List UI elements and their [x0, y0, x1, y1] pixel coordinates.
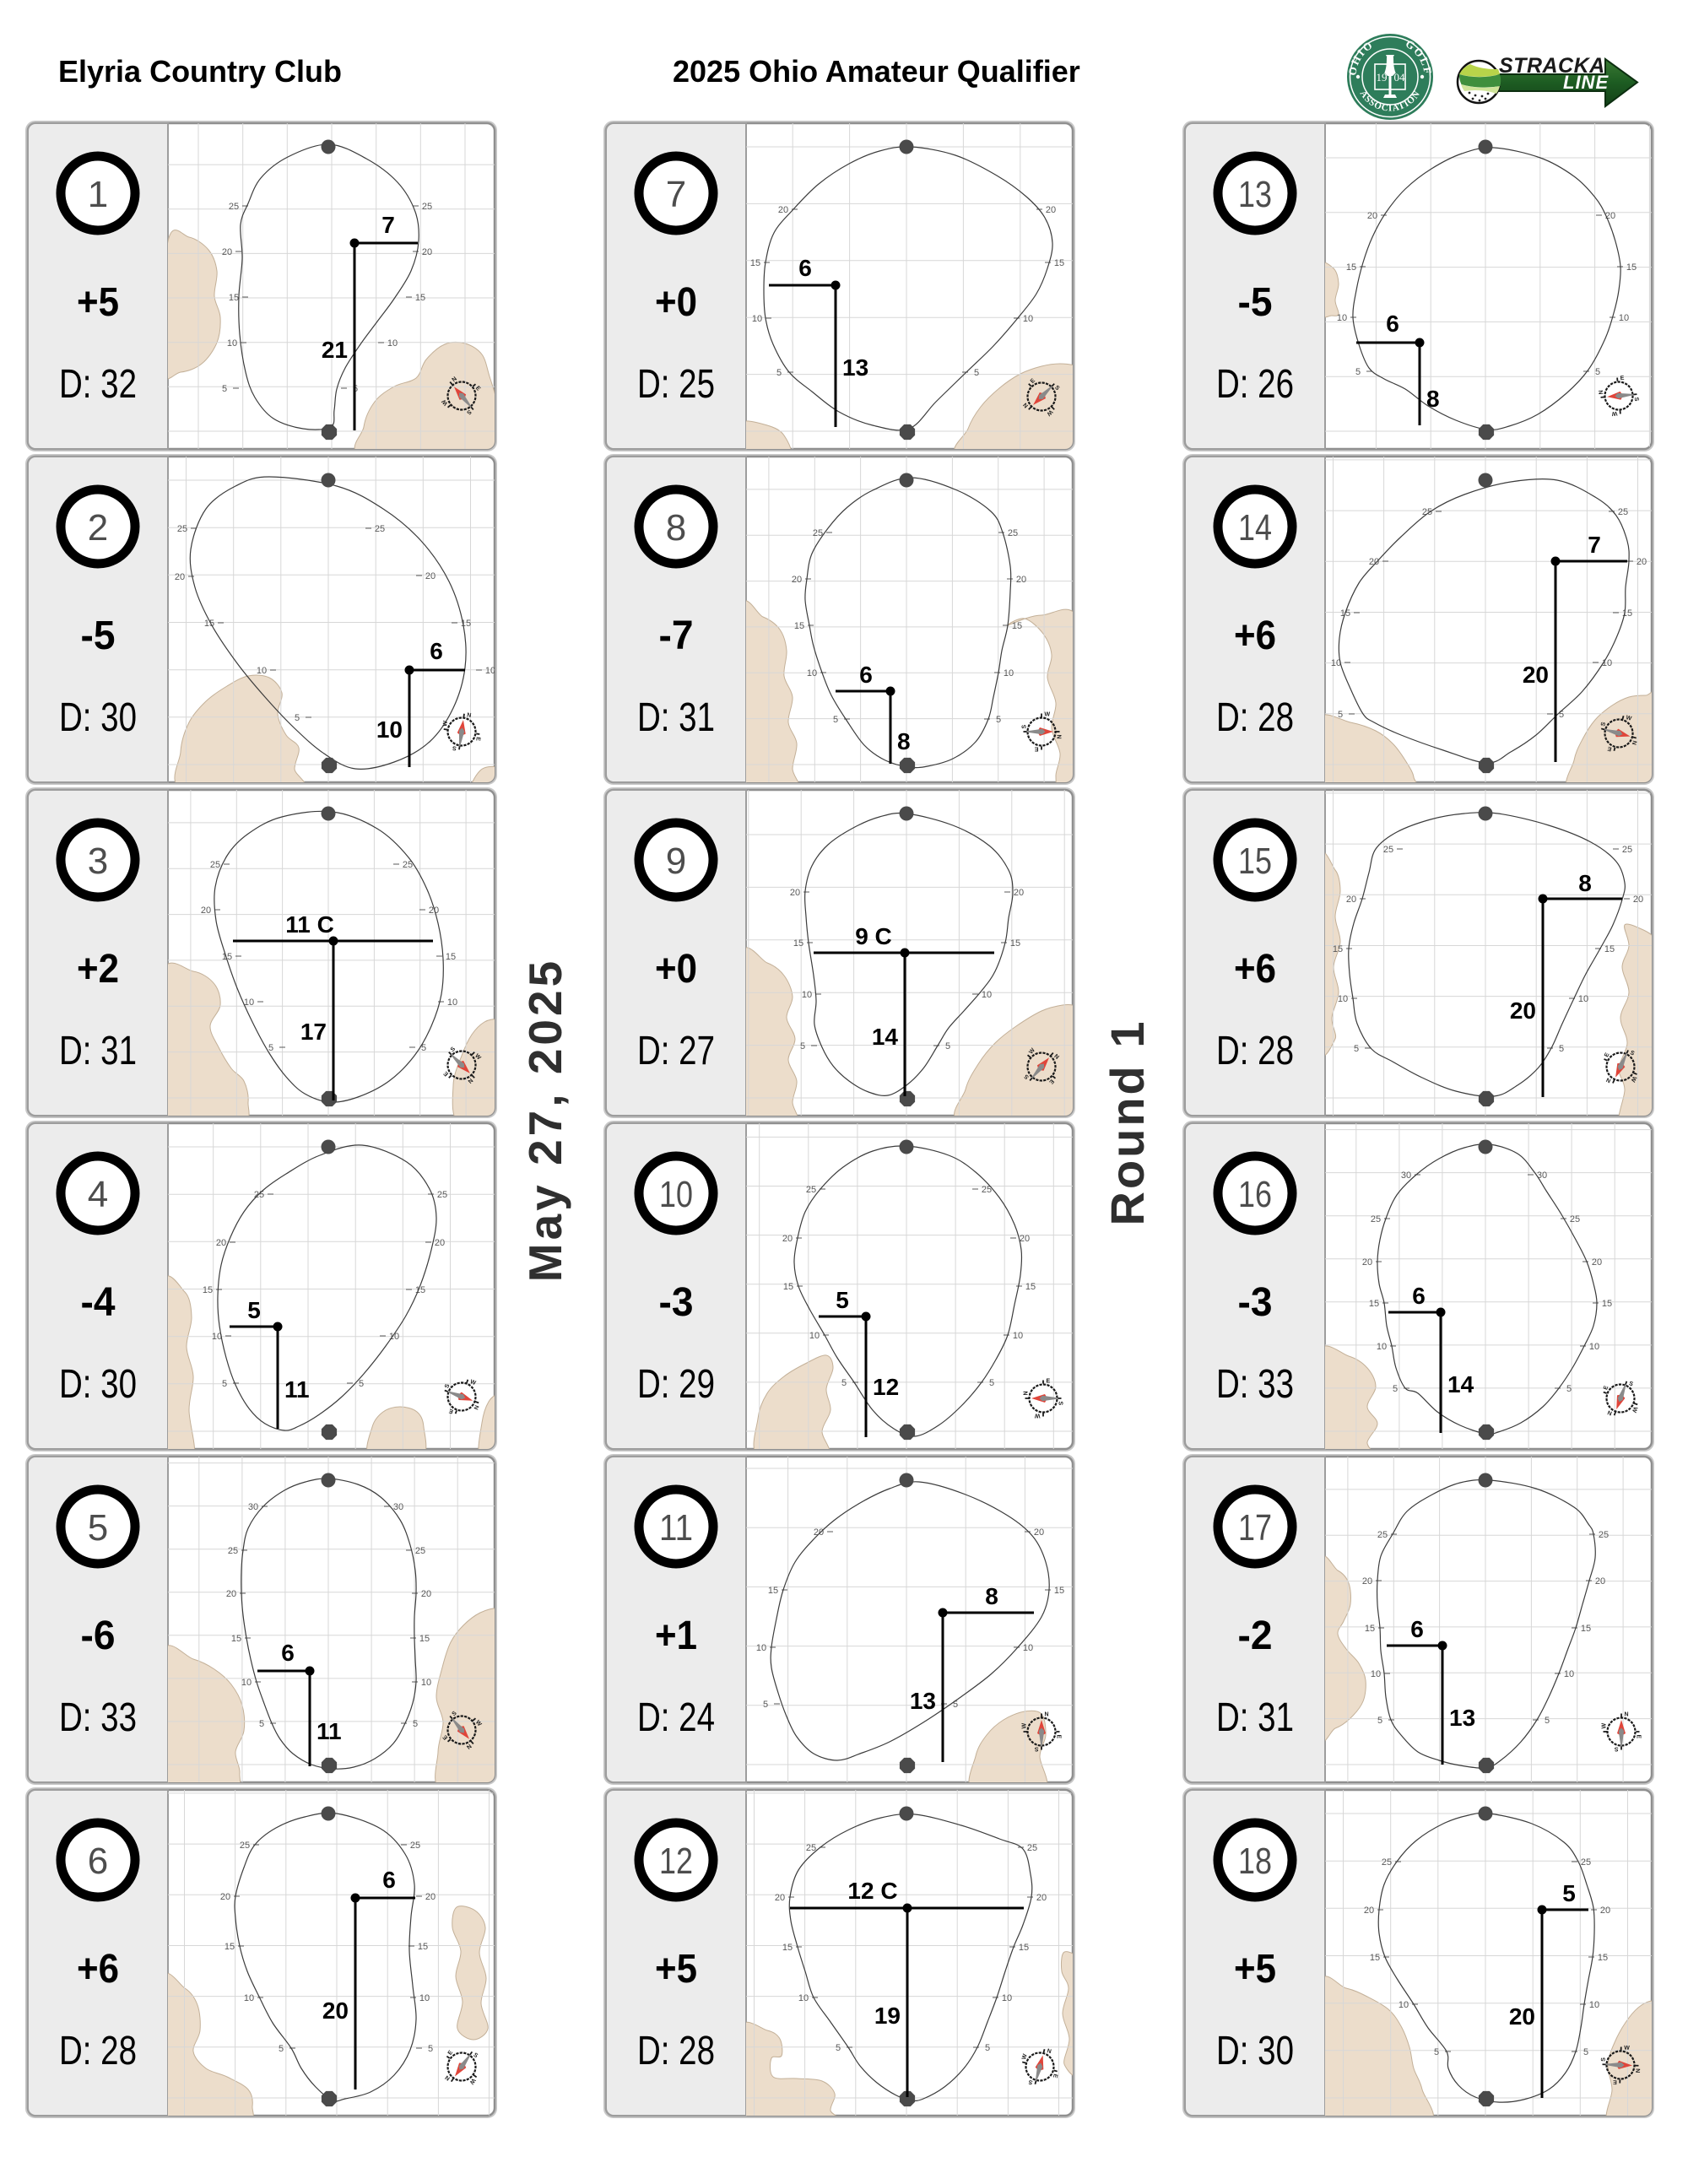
svg-text:10: 10: [244, 1993, 254, 2003]
svg-text:10: 10: [1371, 1669, 1381, 1679]
svg-text:S: S: [1058, 1402, 1063, 1406]
svg-text:25: 25: [1570, 1214, 1580, 1224]
svg-text:12: 12: [873, 1374, 899, 1400]
svg-text:5: 5: [1434, 2047, 1439, 2057]
svg-text:20: 20: [1367, 211, 1377, 221]
svg-text:10: 10: [659, 1174, 693, 1215]
svg-text:20: 20: [222, 247, 232, 257]
svg-text:-4: -4: [81, 1280, 116, 1325]
svg-text:5: 5: [763, 1700, 768, 1710]
svg-text:20: 20: [1016, 575, 1026, 585]
svg-text:-5: -5: [1238, 280, 1273, 325]
svg-text:10: 10: [807, 668, 817, 678]
svg-text:25: 25: [1377, 1530, 1388, 1540]
svg-text:5: 5: [989, 1378, 994, 1388]
svg-text:15: 15: [418, 1942, 428, 1952]
svg-text:20: 20: [216, 1238, 226, 1248]
svg-text:N: N: [1056, 735, 1062, 739]
svg-text:25: 25: [806, 1185, 816, 1195]
svg-text:1: 1: [88, 174, 108, 215]
svg-text:15: 15: [1054, 1586, 1064, 1596]
svg-text:15: 15: [1365, 1624, 1375, 1634]
svg-text:E: E: [1047, 1379, 1051, 1385]
svg-text:5: 5: [1354, 1044, 1359, 1054]
svg-text:5: 5: [833, 715, 838, 725]
svg-text:W: W: [1022, 1723, 1028, 1729]
svg-text:5: 5: [996, 715, 1001, 725]
svg-text:5: 5: [259, 1719, 264, 1729]
svg-text:25: 25: [240, 1841, 250, 1851]
svg-text:6: 6: [859, 662, 873, 688]
svg-text:5: 5: [945, 1041, 950, 1051]
svg-text:+0: +0: [655, 947, 697, 992]
svg-text:D: 30: D: 30: [59, 695, 137, 740]
svg-text:20: 20: [1020, 1234, 1030, 1244]
svg-text:6: 6: [1386, 311, 1399, 337]
svg-text:20: 20: [175, 572, 185, 582]
svg-text:10: 10: [1023, 314, 1033, 324]
svg-text:E: E: [1056, 1735, 1062, 1739]
svg-text:10: 10: [1399, 2000, 1409, 2010]
svg-text:+5: +5: [1234, 1947, 1276, 1992]
svg-text:7: 7: [666, 174, 686, 215]
svg-text:-2: -2: [1238, 1614, 1273, 1658]
svg-text:6: 6: [88, 1841, 108, 1882]
svg-text:20: 20: [220, 1892, 230, 1902]
svg-text:15: 15: [231, 1634, 241, 1644]
svg-text:5: 5: [222, 384, 227, 394]
svg-text:20: 20: [1510, 997, 1536, 1024]
svg-text:D: 28: D: 28: [1216, 1029, 1294, 1073]
svg-text:15: 15: [794, 621, 804, 631]
svg-text:10: 10: [802, 990, 812, 1000]
svg-text:20: 20: [1362, 1257, 1372, 1268]
svg-text:15: 15: [1369, 1299, 1379, 1309]
svg-text:S: S: [1601, 2057, 1607, 2062]
svg-text:N: N: [1599, 390, 1604, 395]
svg-text:18: 18: [1238, 1841, 1272, 1882]
svg-text:15: 15: [446, 952, 456, 962]
svg-text:25: 25: [228, 1546, 238, 1556]
svg-text:-7: -7: [659, 614, 694, 658]
svg-text:N: N: [1625, 1712, 1629, 1718]
svg-text:7: 7: [381, 212, 395, 238]
svg-text:25: 25: [415, 1546, 425, 1556]
svg-text:20: 20: [1362, 1576, 1372, 1587]
svg-text:12 C: 12 C: [847, 1878, 897, 1904]
svg-text:25: 25: [229, 202, 239, 212]
svg-text:6: 6: [1410, 1616, 1424, 1642]
svg-text:10: 10: [1589, 1342, 1599, 1352]
svg-text:5: 5: [841, 1378, 847, 1388]
svg-text:20: 20: [422, 247, 432, 257]
svg-text:-6: -6: [81, 1614, 116, 1658]
svg-text:+2: +2: [77, 947, 119, 992]
svg-text:10: 10: [1578, 994, 1588, 1004]
svg-text:W: W: [1611, 410, 1618, 417]
svg-text:D: 28: D: 28: [637, 2029, 715, 2073]
svg-text:11: 11: [316, 1718, 342, 1744]
svg-text:+6: +6: [1234, 947, 1276, 992]
svg-text:2025 Ohio Amateur Qualifier: 2025 Ohio Amateur Qualifier: [673, 54, 1080, 89]
svg-text:W: W: [1602, 1723, 1608, 1729]
svg-text:N: N: [1024, 1391, 1030, 1395]
svg-text:4: 4: [88, 1174, 108, 1215]
svg-text:20: 20: [1036, 1893, 1047, 1903]
svg-text:20: 20: [1346, 895, 1356, 905]
svg-text:10: 10: [1337, 313, 1347, 323]
svg-text:20: 20: [1605, 211, 1615, 221]
svg-text:D: 28: D: 28: [1216, 695, 1294, 740]
svg-text:30: 30: [393, 1502, 403, 1512]
svg-text:10: 10: [485, 666, 495, 676]
svg-text:8: 8: [897, 728, 911, 754]
svg-text:20: 20: [814, 1527, 824, 1538]
svg-text:LINE: LINE: [1563, 72, 1609, 93]
svg-text:5: 5: [247, 1297, 261, 1323]
svg-text:25: 25: [254, 1190, 264, 1200]
svg-text:6: 6: [798, 255, 812, 281]
svg-text:25: 25: [437, 1190, 447, 1200]
svg-text:15: 15: [1054, 258, 1064, 268]
svg-text:13: 13: [910, 1688, 936, 1714]
svg-text:20: 20: [425, 571, 436, 581]
svg-text:D: 31: D: 31: [1216, 1695, 1294, 1740]
svg-text:25: 25: [1622, 845, 1632, 855]
svg-text:5: 5: [974, 368, 979, 378]
svg-text:15: 15: [1012, 621, 1022, 631]
svg-text:25: 25: [177, 524, 187, 534]
svg-text:10: 10: [447, 997, 457, 1008]
svg-text:11 C: 11 C: [285, 911, 334, 938]
svg-text:5: 5: [1338, 710, 1343, 720]
svg-text:5: 5: [1545, 1716, 1550, 1726]
svg-text:10: 10: [419, 1993, 430, 2003]
svg-text:10: 10: [241, 1678, 252, 1688]
svg-text:5: 5: [1566, 1384, 1572, 1394]
svg-text:15: 15: [1626, 262, 1637, 273]
svg-text:25: 25: [1581, 1857, 1591, 1868]
svg-text:+6: +6: [77, 1947, 119, 1992]
svg-text:9 C: 9 C: [855, 923, 892, 949]
svg-text:5: 5: [836, 1287, 849, 1313]
svg-text:13: 13: [1238, 174, 1272, 215]
svg-text:20: 20: [1014, 888, 1024, 898]
svg-text:10: 10: [1619, 313, 1629, 323]
svg-text:15: 15: [1346, 262, 1356, 273]
svg-text:5: 5: [268, 1043, 273, 1053]
svg-text:10: 10: [752, 314, 762, 324]
svg-text:W: W: [1035, 1413, 1041, 1419]
svg-text:16: 16: [1238, 1174, 1272, 1215]
svg-text:20: 20: [201, 905, 211, 916]
svg-text:15: 15: [1581, 1624, 1591, 1634]
svg-text:D: 26: D: 26: [1216, 362, 1294, 407]
svg-text:+5: +5: [655, 1947, 697, 1992]
svg-text:D: 30: D: 30: [1216, 2029, 1294, 2073]
svg-text:20: 20: [421, 1589, 431, 1599]
svg-text:20: 20: [1592, 1257, 1602, 1268]
svg-text:2: 2: [88, 507, 108, 549]
svg-text:10: 10: [982, 990, 992, 1000]
svg-text:10: 10: [1023, 1643, 1033, 1653]
svg-text:20: 20: [1600, 1906, 1610, 1916]
svg-text:N: N: [1045, 1712, 1049, 1718]
svg-text:S: S: [1035, 1746, 1039, 1752]
svg-text:8: 8: [1426, 386, 1440, 412]
svg-text:10: 10: [1004, 668, 1014, 678]
svg-text:15: 15: [1238, 841, 1272, 882]
svg-text:May 27, 2025: May 27, 2025: [519, 958, 571, 1282]
svg-text:15: 15: [419, 1634, 430, 1644]
svg-text:20: 20: [1523, 662, 1549, 688]
svg-text:15: 15: [768, 1586, 778, 1596]
svg-text:10: 10: [257, 666, 267, 676]
svg-text:E: E: [1613, 2079, 1617, 2084]
svg-text:D: 31: D: 31: [59, 1029, 137, 1073]
svg-text:8: 8: [666, 507, 686, 549]
svg-text:5: 5: [776, 368, 782, 378]
svg-text:D: 33: D: 33: [1216, 1362, 1294, 1407]
svg-text:5: 5: [1355, 367, 1361, 377]
svg-text:+0: +0: [655, 280, 697, 325]
svg-text:D: 24: D: 24: [637, 1695, 715, 1740]
svg-text:20: 20: [1046, 205, 1056, 215]
svg-text:5: 5: [985, 2043, 990, 2053]
svg-text:5: 5: [359, 1379, 364, 1389]
svg-text:5: 5: [88, 1507, 108, 1549]
svg-text:5: 5: [800, 1041, 805, 1051]
svg-text:17: 17: [300, 1019, 327, 1045]
svg-text:5: 5: [1393, 1384, 1398, 1394]
svg-text:10: 10: [798, 1993, 809, 2003]
svg-text:10: 10: [376, 716, 403, 743]
svg-text:15: 15: [1019, 1943, 1029, 1953]
svg-text:20: 20: [1509, 2003, 1535, 2030]
svg-text:-5: -5: [81, 614, 116, 658]
svg-text:10: 10: [756, 1643, 766, 1653]
svg-text:5: 5: [1583, 2047, 1588, 2057]
svg-text:5: 5: [1377, 1716, 1382, 1726]
svg-text:D: 27: D: 27: [637, 1029, 715, 1073]
svg-text:6: 6: [430, 638, 443, 664]
svg-text:E: E: [1035, 746, 1039, 752]
svg-text:20: 20: [435, 1238, 445, 1248]
svg-text:25: 25: [210, 860, 220, 870]
svg-text:6: 6: [1412, 1283, 1426, 1309]
svg-text:11: 11: [659, 1507, 693, 1549]
svg-text:25: 25: [1382, 1857, 1392, 1868]
svg-text:3: 3: [88, 841, 108, 882]
svg-text:15: 15: [1370, 1953, 1380, 1963]
svg-text:15: 15: [1025, 1282, 1036, 1292]
svg-text:8: 8: [985, 1583, 998, 1609]
svg-text:10: 10: [1338, 994, 1348, 1004]
svg-text:15: 15: [1598, 1953, 1608, 1963]
svg-text:5: 5: [1562, 1880, 1576, 1906]
svg-text:25: 25: [1599, 1530, 1609, 1540]
svg-text:25: 25: [1383, 845, 1393, 855]
svg-text:W: W: [1624, 2046, 1630, 2052]
svg-text:6: 6: [281, 1640, 295, 1666]
svg-text:21: 21: [322, 337, 348, 363]
svg-text:D: 29: D: 29: [637, 1362, 715, 1407]
svg-text:Elyria Country Club: Elyria Country Club: [58, 54, 342, 89]
svg-text:14: 14: [872, 1024, 899, 1050]
svg-text:14: 14: [1447, 1371, 1474, 1397]
svg-text:9: 9: [666, 841, 686, 882]
svg-text:12: 12: [659, 1841, 693, 1882]
svg-text:D: 30: D: 30: [59, 1362, 137, 1407]
svg-text:-3: -3: [659, 1280, 694, 1325]
svg-text:15: 15: [750, 258, 760, 268]
svg-text:5: 5: [222, 1379, 227, 1389]
svg-text:25: 25: [1371, 1214, 1381, 1224]
svg-text:15: 15: [782, 1943, 793, 1953]
svg-text:-3: -3: [1238, 1280, 1273, 1325]
svg-text:20: 20: [226, 1589, 236, 1599]
svg-text:20: 20: [778, 205, 788, 215]
svg-text:19: 19: [874, 2003, 901, 2029]
svg-text:25: 25: [1422, 507, 1432, 517]
svg-text:E: E: [1636, 1735, 1642, 1739]
svg-text:10: 10: [1002, 1993, 1012, 2003]
svg-text:30: 30: [1401, 1170, 1411, 1181]
svg-text:15: 15: [1010, 938, 1020, 949]
svg-text:5: 5: [295, 713, 300, 723]
svg-text:10: 10: [1564, 1669, 1574, 1679]
svg-text:7: 7: [1588, 532, 1601, 558]
svg-text:5: 5: [279, 2044, 284, 2054]
svg-text:+5: +5: [77, 280, 119, 325]
svg-text:20: 20: [322, 1997, 349, 2024]
svg-text:5: 5: [428, 2044, 433, 2054]
svg-text:25: 25: [1618, 507, 1628, 517]
svg-text:25: 25: [1027, 1843, 1037, 1853]
svg-text:13: 13: [1449, 1705, 1475, 1731]
svg-text:10: 10: [1589, 2000, 1599, 2010]
svg-text:14: 14: [1238, 507, 1272, 549]
svg-text:15: 15: [1333, 944, 1343, 954]
svg-text:15: 15: [1604, 944, 1615, 954]
svg-text:8: 8: [1578, 870, 1592, 896]
svg-text:Round 1: Round 1: [1101, 1019, 1154, 1226]
svg-text:20: 20: [1364, 1906, 1374, 1916]
svg-text:10: 10: [1013, 1331, 1023, 1341]
svg-text:17: 17: [1238, 1507, 1272, 1549]
svg-text:25: 25: [1008, 528, 1018, 538]
svg-text:10: 10: [809, 1331, 820, 1341]
svg-text:25: 25: [422, 202, 432, 212]
svg-text:30: 30: [248, 1502, 258, 1512]
svg-text:20: 20: [1633, 895, 1643, 905]
svg-text:25: 25: [375, 524, 385, 534]
svg-text:20: 20: [782, 1234, 793, 1244]
svg-text:D: 32: D: 32: [59, 362, 137, 407]
svg-text:20: 20: [790, 888, 800, 898]
svg-text:N: N: [467, 712, 472, 719]
svg-text:5: 5: [1559, 1044, 1564, 1054]
svg-text:5: 5: [836, 2043, 841, 2053]
svg-text:D: 25: D: 25: [637, 362, 715, 407]
svg-text:13: 13: [842, 354, 868, 381]
svg-text:30: 30: [1537, 1170, 1547, 1181]
svg-text:20: 20: [1595, 1576, 1605, 1587]
svg-text:15: 15: [203, 1285, 213, 1295]
svg-text:20: 20: [1034, 1527, 1044, 1538]
svg-text:20: 20: [792, 575, 802, 585]
svg-text:S: S: [1615, 1746, 1619, 1752]
svg-text:+6: +6: [1234, 614, 1276, 658]
svg-text:20: 20: [425, 1892, 436, 1902]
svg-text:15: 15: [229, 293, 239, 303]
svg-text:25: 25: [410, 1841, 420, 1851]
svg-text:D: 28: D: 28: [59, 2029, 137, 2073]
svg-text:N: N: [1634, 2068, 1640, 2073]
svg-text:10: 10: [1377, 1342, 1387, 1352]
svg-text:15: 15: [225, 1942, 235, 1952]
svg-text:10: 10: [227, 338, 237, 349]
svg-text:5: 5: [1595, 367, 1600, 377]
svg-text:D: 31: D: 31: [637, 695, 715, 740]
svg-text:S: S: [1022, 725, 1028, 729]
svg-text:15: 15: [783, 1282, 793, 1292]
svg-text:+1: +1: [655, 1614, 697, 1658]
svg-text:5: 5: [413, 1719, 418, 1729]
svg-text:10: 10: [421, 1678, 431, 1688]
svg-text:6: 6: [382, 1867, 396, 1893]
svg-text:20: 20: [775, 1893, 785, 1903]
svg-text:15: 15: [793, 938, 803, 949]
svg-text:15: 15: [415, 293, 425, 303]
svg-text:20: 20: [1637, 557, 1647, 567]
svg-text:D: 33: D: 33: [59, 1695, 137, 1740]
svg-text:15: 15: [1602, 1299, 1612, 1309]
svg-text:10: 10: [387, 338, 398, 349]
svg-text:11: 11: [284, 1376, 310, 1403]
svg-text:W: W: [1045, 712, 1051, 718]
